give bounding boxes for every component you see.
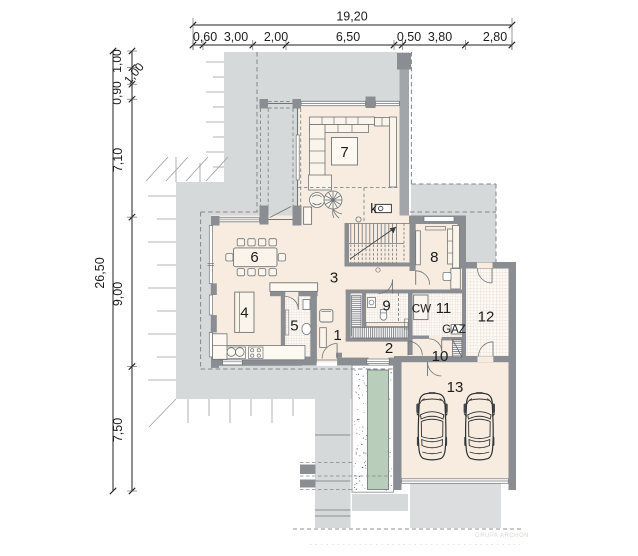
- svg-text:7,10: 7,10: [111, 148, 125, 172]
- svg-text:12: 12: [478, 309, 495, 326]
- svg-text:0,50: 0,50: [397, 30, 421, 44]
- svg-text:9,00: 9,00: [111, 282, 125, 306]
- svg-text:4: 4: [240, 305, 248, 322]
- svg-text:0,60: 0,60: [193, 30, 217, 44]
- svg-text:1: 1: [333, 327, 341, 344]
- svg-text:3,80: 3,80: [428, 30, 452, 44]
- svg-text:5: 5: [290, 318, 298, 335]
- svg-text:k: k: [370, 201, 377, 216]
- svg-text:0,90: 0,90: [110, 81, 124, 105]
- svg-text:1,00: 1,00: [110, 49, 124, 73]
- svg-text:11: 11: [436, 300, 452, 317]
- svg-text:3,00: 3,00: [224, 30, 248, 44]
- svg-text:3: 3: [330, 270, 338, 287]
- svg-text:8: 8: [430, 249, 438, 266]
- svg-text:9: 9: [382, 298, 390, 315]
- svg-text:19,20: 19,20: [336, 10, 367, 24]
- svg-text:7,50: 7,50: [111, 418, 125, 442]
- svg-text:26,50: 26,50: [93, 257, 107, 288]
- svg-text:2,80: 2,80: [483, 30, 507, 44]
- svg-text:10: 10: [432, 348, 449, 365]
- svg-text:GRUPA ARCHON: GRUPA ARCHON: [475, 533, 529, 539]
- svg-text:6: 6: [250, 249, 258, 266]
- svg-text:2: 2: [385, 340, 393, 357]
- svg-text:6,50: 6,50: [336, 30, 360, 44]
- svg-text:2,00: 2,00: [264, 30, 288, 44]
- svg-text:GAZ: GAZ: [442, 324, 466, 336]
- svg-text:CW: CW: [412, 304, 431, 316]
- svg-text:7: 7: [340, 144, 348, 161]
- svg-text:13: 13: [447, 379, 464, 396]
